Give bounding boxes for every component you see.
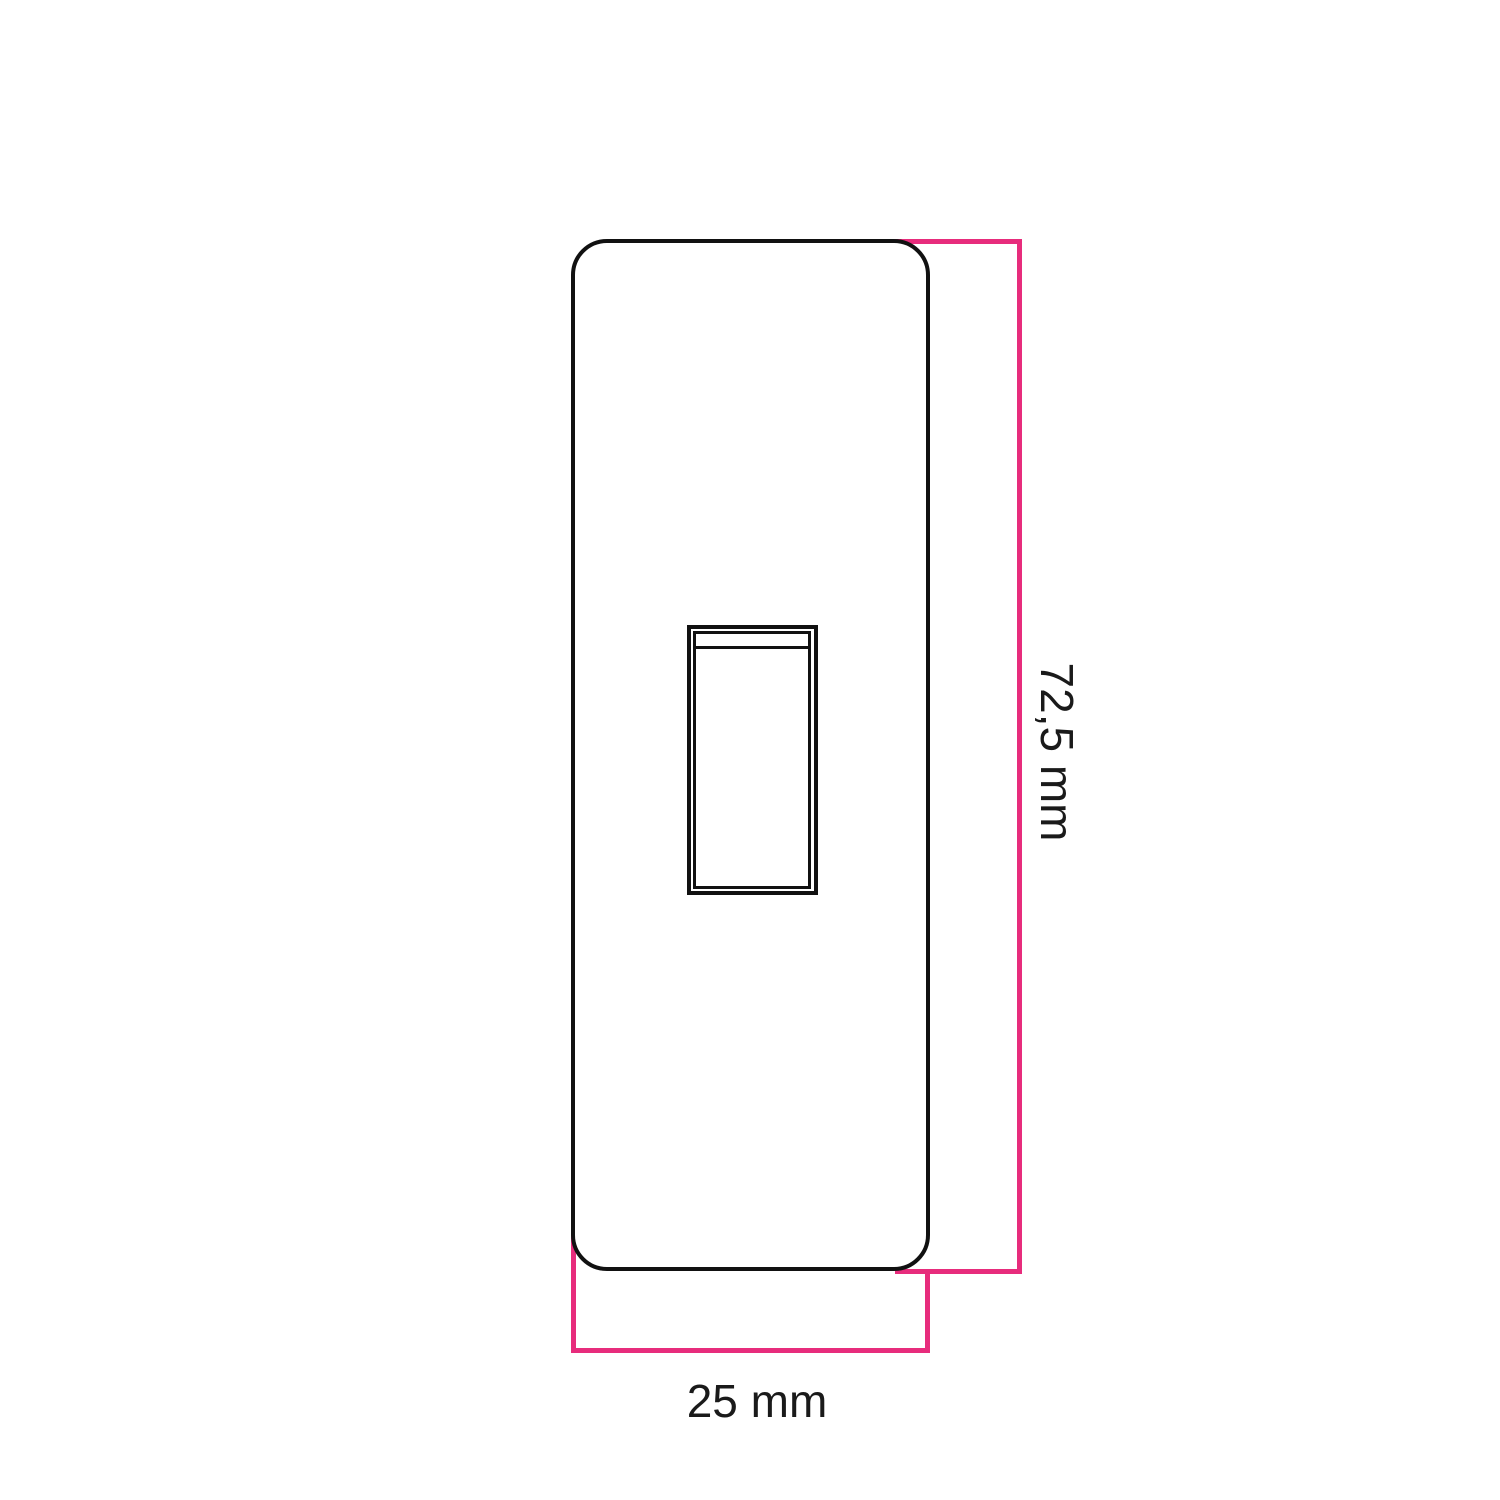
height-dim-top-extension-line (895, 239, 1022, 244)
height-dimension-label: 72,5 mm (1034, 663, 1080, 842)
width-dimension-label: 25 mm (687, 1378, 828, 1424)
dimension-diagram: 72,5 mm 25 mm (0, 0, 1500, 1500)
height-dim-bottom-extension-line (895, 1269, 1022, 1274)
width-dim-line (571, 1348, 930, 1353)
rocker-top-band-line (694, 646, 810, 649)
switch-rocker-outline (693, 631, 811, 889)
height-dim-line (1017, 239, 1022, 1274)
width-dim-right-extension-line (925, 1269, 930, 1353)
